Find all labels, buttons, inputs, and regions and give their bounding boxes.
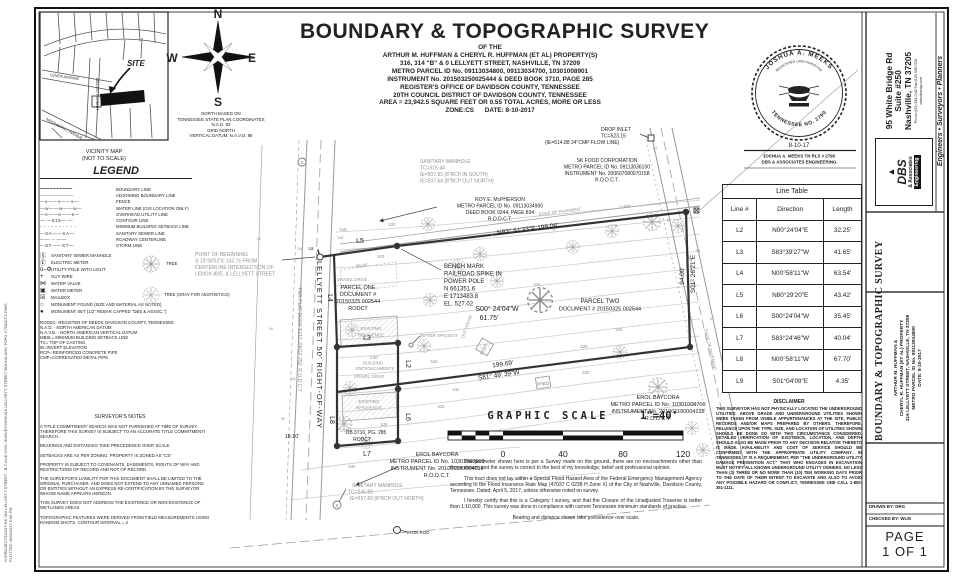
drawing-label: ST bbox=[709, 316, 715, 321]
surveyor-note: SETBACKS ARE AS PER ZONING. PROPERTY IS … bbox=[40, 453, 210, 458]
drawing-label: L5 bbox=[356, 238, 364, 245]
drawn-by: DRAWN BY: DRG bbox=[869, 504, 943, 509]
drawing-label: L2 bbox=[404, 360, 411, 368]
drawing-label: L6 bbox=[404, 413, 411, 421]
surveyor-note: THIS SURVEY DOES NOT ADDRESS THE EXISTEN… bbox=[40, 500, 210, 510]
disclaimer-text: THIS SURVEYOR HAS NOT PHYSICALLY LOCATED… bbox=[716, 407, 862, 490]
drawing-label: PER PLAT BOOK 5210, PAGE 252, R.O.D.C.T. bbox=[296, 287, 302, 392]
legend-symbol-icon: ● bbox=[40, 309, 51, 315]
drawing-label: R.O.D.C.T. bbox=[595, 178, 619, 184]
legend-line-sample: —ST——ST— bbox=[40, 243, 116, 248]
legend-line-item: —ST——ST—STORM LINE bbox=[40, 243, 200, 249]
drawing-label: LELLYETT STREET 50' RIGHT-OF-WAY bbox=[315, 261, 324, 429]
drawing-label: LENOX AVE. & LELLYETT STREET bbox=[195, 272, 275, 278]
drawing-label: L7 bbox=[363, 451, 371, 458]
svg-text:S: S bbox=[335, 503, 338, 508]
drawing-label: S bbox=[214, 95, 222, 109]
drawing-label: RESIDENCE bbox=[356, 406, 382, 411]
title-description: ARTHUR M. HUFFMAN & CHERYL R. HUFFMAN (E… bbox=[270, 52, 710, 115]
graphic-scale-title: GRAPHIC SCALE bbox=[448, 410, 648, 422]
title-line: REGISTER'S OFFICE OF DAVIDSON COUNTY, TE… bbox=[270, 84, 710, 92]
address-line: Nashville, TN 37205 bbox=[904, 52, 914, 130]
legend-line-sample: —— – —— bbox=[40, 237, 116, 242]
drawing-label: 528 bbox=[581, 344, 589, 349]
drawing-label: 18.10' bbox=[285, 434, 300, 440]
company-contact: Phone (615) 294-0042 Fax (615) 645-7722 bbox=[914, 52, 918, 130]
table-header: Direction bbox=[757, 199, 824, 221]
drawing-label: W bbox=[166, 51, 178, 65]
drawing-label: SANITARY MANHOLE bbox=[352, 483, 403, 489]
drawing-label: L8 bbox=[328, 416, 335, 424]
drawing-label: TC=515.44 bbox=[420, 166, 445, 172]
table-row: L6S00°24'04"W35.45' bbox=[723, 306, 862, 328]
legend-line-sample: —e——e——e— bbox=[40, 212, 116, 217]
drawing-label: S01° 26'21"E bbox=[689, 254, 697, 293]
seal-inner-arc: REGISTERED LAND SURVEYOR bbox=[775, 59, 824, 73]
drawing-label: W bbox=[269, 326, 273, 331]
checked-by: CHECKED BY: WLM bbox=[869, 516, 943, 521]
page-number-label: PAGE bbox=[866, 529, 944, 544]
company-address: 95 White Bridge RdSuite #250Nashville, T… bbox=[885, 52, 924, 130]
drawing-label: W bbox=[281, 416, 285, 421]
site-parcel bbox=[100, 90, 145, 106]
legend-line-sample: — —515— — bbox=[40, 218, 116, 223]
iron-rod-icon bbox=[394, 527, 401, 534]
drawing-label: DOCUMENT # bbox=[340, 292, 377, 298]
water-meter-icon bbox=[694, 208, 699, 213]
drawing-label: 530 bbox=[583, 370, 591, 375]
drawing-label: 534 bbox=[453, 387, 461, 392]
drawing-label: SANITARY MANHOLE bbox=[420, 159, 471, 165]
project-line: DATE: 8-10-2017 bbox=[918, 295, 924, 441]
drawing-label: 524 bbox=[534, 282, 542, 287]
plot-file-note: N:\PROJECTS\2017\ND 316 LELLYETT STREET … bbox=[4, 142, 14, 562]
table-row: L7S83°24'46"W40.04' bbox=[723, 328, 862, 350]
svg-text:S: S bbox=[300, 160, 303, 165]
surveyor-note: PROPERTY IS SUBJECT TO COVENANTS, EASEME… bbox=[40, 462, 210, 472]
drawing-label: ROY E. McPHERSON bbox=[475, 197, 525, 203]
legend-symbol-label: UTILITY POLE WITH LIGHT bbox=[51, 267, 106, 272]
survey-sheet: S S bbox=[0, 0, 957, 580]
drawing-label: N bbox=[214, 7, 223, 21]
legend-line-sample: —x——x——x— bbox=[40, 199, 116, 204]
site-leader bbox=[113, 68, 130, 90]
disclaimer-header: DISCLAIMER bbox=[716, 399, 862, 405]
drawing-label: EXISTING bbox=[360, 326, 382, 331]
seal-eagle-icon bbox=[779, 86, 819, 107]
drawing-label: 199.69' bbox=[492, 360, 514, 370]
surveyor-seal: JOSHUA A. MEEKS REGISTERED LAND SURVEYOR… bbox=[744, 46, 856, 168]
legend-line-sample: —SA——SA— bbox=[40, 231, 116, 236]
drawing-label: DEED BOOK 9244, PAGE 834 bbox=[466, 210, 534, 216]
drawing-label: IE=507.64 (8"RCP OUT NORTH) bbox=[420, 179, 494, 185]
drawing-label: E 1713483.8 bbox=[444, 294, 479, 300]
drawing-label: GRAVEL DRIVE bbox=[354, 374, 385, 379]
graphic-scale-bar bbox=[448, 431, 683, 440]
north-datum-note: NORTH BASED ONTENNESSEE STATE PLAN COORD… bbox=[148, 111, 294, 139]
legend-symbol-label: ELECTRIC METER bbox=[51, 260, 88, 265]
table-row: L5N80°29'20"E43.42' bbox=[723, 285, 862, 307]
drawing-label: ST bbox=[652, 146, 658, 151]
north-note-line: VERTICAL DATUM: N.A.V.D. 88 bbox=[148, 133, 294, 139]
drawing-label: POINT OF BEGINNING bbox=[195, 252, 248, 258]
drawing-label: RODCT bbox=[348, 306, 368, 312]
drawing-label: S81° 49' 39"W bbox=[477, 368, 520, 382]
drawing-label: SITE bbox=[127, 59, 145, 68]
drawing-label: 38.94' bbox=[355, 262, 368, 268]
drawing-label: × bbox=[429, 238, 432, 244]
legend-line-item: —w——w——w—WATER LINE (GIS LOCATION ONLY) bbox=[40, 205, 200, 211]
legend-line-label: FENCE bbox=[116, 199, 131, 204]
drawing-label: × bbox=[667, 218, 670, 224]
drawing-label: GRAVEL DRIVE bbox=[337, 277, 368, 282]
certification-notes: The perimeter shown here is per a Survey… bbox=[450, 459, 702, 525]
company-logo: ▲ DBS & Associates Engineering bbox=[875, 138, 933, 206]
drawing-label: POWER POLE bbox=[444, 279, 484, 285]
drawing-label: L9 bbox=[308, 246, 314, 251]
legend-tree-label: TREE bbox=[166, 261, 177, 266]
compass-rose bbox=[182, 21, 254, 93]
drawing-label: (IE=514.88 24"CMP FLOW LINE) bbox=[545, 140, 620, 146]
table-row: L4N00°58'11"W63.54' bbox=[723, 263, 862, 285]
drawing-label: OUT HOUSE bbox=[460, 314, 473, 339]
drawing-label: × bbox=[491, 233, 494, 239]
surveyor-note: A TITLE COMMITMENT/ SEARCH WAS NOT FURNI… bbox=[40, 424, 210, 439]
surveyors-notes-header: SURVEYOR'S NOTES bbox=[40, 414, 200, 420]
logo-dbs: DBS bbox=[896, 159, 908, 184]
plot-timestamp: PLOTTED: 8/29/2017 5:05 PM bbox=[9, 142, 14, 562]
drawing-label: 536 bbox=[438, 404, 446, 409]
seal-cert-line1: JOSHUA A. MEEKS TN RLS # 2790 bbox=[763, 154, 836, 159]
drawing-label: 526 bbox=[616, 327, 624, 332]
drawing-label: N 661351.6 bbox=[444, 287, 476, 293]
drawing-label: BUILDING bbox=[363, 361, 383, 366]
page-subtitle: OF THE bbox=[300, 44, 680, 51]
seal-date: 8-10-17 bbox=[789, 143, 810, 149]
drawing-label: PARCEL TWO bbox=[581, 299, 620, 305]
company-web: www.dbsengr.com bbox=[919, 52, 923, 130]
svg-text:REGISTERED LAND SURVEYOR: REGISTERED LAND SURVEYOR bbox=[775, 59, 824, 73]
sanitary-manhole-icon: S bbox=[333, 501, 341, 509]
surveyors-notes: A TITLE COMMITMENT/ SEARCH WAS NOT FURNI… bbox=[40, 424, 210, 529]
drawing-label: IRON ROD bbox=[407, 530, 430, 535]
drawing-label: 94.00' bbox=[679, 267, 686, 285]
drawing-label: R.O.D.C.T. bbox=[424, 473, 451, 479]
legend-line-label: CONTOUR LINE bbox=[116, 218, 148, 223]
drawing-label: EROL BAYCORA bbox=[416, 452, 459, 458]
drawing-label: EDGE OF PAVEMENT bbox=[703, 328, 718, 371]
legend-line-label: BOUNDARY LINE bbox=[116, 187, 151, 192]
title-line: 20TH COUNCIL DISTRICT OF DAVIDSON COUNTY… bbox=[270, 92, 710, 100]
legend-symbol-label: WATER METER bbox=[51, 288, 82, 293]
sanitary-manhole-icon: S bbox=[298, 158, 306, 166]
company-block: ▲ DBS & Associates Engineering 95 White … bbox=[872, 14, 936, 208]
scale-tick-label: 80 bbox=[618, 449, 628, 459]
drawing-label: SA bbox=[290, 376, 296, 381]
certification-paragraph: I hereby certify that this is a Category… bbox=[450, 498, 702, 510]
legend-line-item: - - - - - - - - - -MINIMUM BUILDING SETB… bbox=[40, 224, 200, 230]
drawing-label: EDGE OF PAVEMENT bbox=[538, 206, 581, 216]
drawing-label: DROP INLET bbox=[601, 127, 631, 133]
drawing-label: R.O.D.C.T. bbox=[488, 217, 512, 223]
title-line: 316, 314 "B" & 0 LELLYETT STREET, NASHVI… bbox=[270, 60, 710, 68]
drawing-label: ENCROACHMENTS bbox=[356, 366, 395, 371]
drawing-label: IE=507.93 (8"RCP IN SOUTH) bbox=[420, 172, 488, 178]
logo-engineering: Engineering bbox=[914, 155, 921, 190]
legend-line-label: ADJOINING BOUNDARY LINE bbox=[116, 193, 176, 198]
title-line: ZONE:CS DATE: 8-10-2017 bbox=[270, 107, 710, 115]
drawing-label: METRO PARCEL ID No. 09113036100 bbox=[564, 165, 650, 171]
legend-line-label: ROADWAY CENTERLINE bbox=[116, 237, 166, 242]
drawing-label: 20150325 002544 bbox=[336, 299, 380, 305]
drawing-label: ST bbox=[695, 248, 701, 253]
project-block: BOUNDARY & TOPOGRAPHIC SURVEY ARTHUR M. … bbox=[874, 295, 932, 441]
drawing-label: RODCT bbox=[353, 437, 371, 443]
title-line: AREA = 23,942.5 SQUARE FEET OR 0.55 TOTA… bbox=[270, 99, 710, 107]
drawing-label: 522 bbox=[378, 254, 386, 259]
drawing-label: W bbox=[257, 236, 261, 241]
drawing-label: 532 bbox=[431, 359, 439, 364]
title-line: ARTHUR M. HUFFMAN & CHERYL R. HUFFMAN (E… bbox=[270, 52, 710, 60]
water-spiggot-icon bbox=[409, 343, 413, 347]
legend-symbol-label: WATER VALVE bbox=[51, 281, 80, 286]
legend-symbol-icon: ○ bbox=[40, 302, 51, 308]
drawing-label: METRO PARCEL ID No. 10301008700 bbox=[610, 402, 705, 408]
drawing-label: E bbox=[248, 51, 256, 65]
certification-paragraph: Bearing and distance shown take preceden… bbox=[450, 515, 702, 521]
drawing-label: PARCEL ONE bbox=[341, 285, 376, 291]
legend-line-label: STORM LINE bbox=[116, 243, 142, 248]
legend-symbol-icon: ▣ bbox=[40, 287, 51, 294]
legend-line-label: OVERHEAD UTILITY LINE bbox=[116, 212, 168, 217]
legend-symbol-label: SANITARY SEWER MANHOLE bbox=[51, 253, 111, 258]
drawing-label: DB.3710, PG. 285 bbox=[346, 430, 387, 436]
certification-paragraph: This tract does not lay within a Special… bbox=[450, 476, 702, 494]
scale-tick-label: 40 bbox=[558, 449, 568, 459]
surveyor-note: THE SURVEYOR'S LIABILITY FOR THIS DOCUME… bbox=[40, 476, 210, 496]
legend-line-label: MINIMUM BUILDING SETBACK LINE bbox=[116, 224, 189, 229]
abbreviation-line: CMP=CORREGATED METAL PIPE bbox=[40, 355, 198, 360]
legend-header: LEGEND bbox=[40, 165, 192, 179]
scale-ticks: 04080120 bbox=[501, 449, 691, 459]
drawing-label: CENTERLINE INTERSECTION OF bbox=[195, 265, 274, 271]
table-header: Line # bbox=[723, 199, 757, 221]
page-title: BOUNDARY & TOPOGRAPHIC SURVEY bbox=[300, 20, 680, 44]
contour-lines bbox=[290, 200, 700, 500]
table-row: L9S01°04'09"E4.35' bbox=[723, 371, 862, 393]
drawing-label: SK FOOD CORPORATION bbox=[577, 158, 638, 164]
title-line: METRO PARCEL ID No. 09113034800, 0911303… bbox=[270, 68, 710, 76]
legend-line-sample: ━━━━━━━━━━ bbox=[40, 186, 116, 192]
drawing-label: BENCH MARK bbox=[444, 264, 484, 270]
drawing-label: DOCUMENT # 20150325 002544 bbox=[559, 307, 641, 313]
certification-paragraph: The perimeter shown here is per a Survey… bbox=[450, 459, 702, 471]
legend-symbol-icon: o–Φ bbox=[40, 267, 51, 273]
surveyor-note: TOPOGRAPHIC FEATURES WERE DERIVED FROM F… bbox=[40, 515, 210, 525]
drawing-label: VICINITY MAP bbox=[86, 149, 123, 155]
drawing-label: TC=523.15 bbox=[601, 134, 626, 140]
seal-cert-line2: DBS & ASSOCIATES ENGINEERING bbox=[762, 160, 837, 165]
drawing-label: 4.90' bbox=[370, 355, 379, 360]
table-row: L2N00°24'04"E32.25' bbox=[723, 220, 862, 242]
drawing-label: SHED bbox=[537, 381, 550, 386]
legend-symbol-label: GUY WIRE bbox=[51, 274, 73, 279]
legend-symbol-label: MAILBOX bbox=[51, 295, 70, 300]
table-row: L8N00°58'11"W67.70' bbox=[723, 349, 862, 371]
scale-tick-label: 120 bbox=[676, 449, 690, 459]
drawing-label: TC=545.83 bbox=[348, 490, 373, 496]
legend-line-label: SANITARY SEWER LINE bbox=[116, 231, 165, 236]
company-tagline: Engineers • Surveyors • Planners bbox=[937, 14, 947, 208]
drawing-label: S00° 24'04"W bbox=[475, 305, 519, 313]
legend-tree-gray-label: TREE (GRAY FOR AESTHETICS) bbox=[164, 292, 230, 297]
line-table-header-row: Line #DirectionLength bbox=[723, 199, 862, 221]
project-title: BOUNDARY & TOPOGRAPHIC SURVEY bbox=[874, 295, 894, 441]
scale-tick-label: 0 bbox=[501, 449, 506, 459]
legend-line-sample: —w——w——w— bbox=[40, 206, 116, 211]
drawing-label: 61.75' bbox=[480, 315, 499, 322]
drawing-label: 5/8" bbox=[338, 235, 346, 240]
drawing-label: 540 bbox=[349, 464, 357, 469]
seal-state-arc: TENNESSEE NO. 2790 bbox=[770, 110, 828, 129]
monument-found-icon bbox=[317, 254, 323, 260]
legend-symbol-icon: ☒ bbox=[40, 294, 51, 301]
drawing-label: 518 bbox=[340, 227, 348, 232]
table-row: L3S83°39'27"W41.65' bbox=[723, 242, 862, 264]
drawing-label: EL. 527.02 bbox=[444, 302, 474, 308]
tree-icon bbox=[140, 253, 162, 280]
line-table: Line Table Line #DirectionLength L2N00°2… bbox=[722, 184, 862, 393]
drawing-label: CURB bbox=[619, 203, 632, 209]
drawing-label: L4 bbox=[326, 294, 333, 302]
drawing-label: INSTRUMENT No. 200607080070158 bbox=[565, 171, 650, 177]
line-table-title: Line Table bbox=[722, 184, 862, 198]
graphic-scale-ratio: 1"=40' bbox=[640, 410, 710, 422]
legend-line-items: ━━━━━━━━━━BOUNDARY LINE─────────ADJOININ… bbox=[40, 186, 200, 249]
drawing-label: EXISTING bbox=[358, 399, 380, 404]
drawing-label: METRO PARCEL ID No. 09113034900 bbox=[457, 204, 543, 210]
drawing-label: LELLYETT STREET bbox=[95, 78, 99, 111]
legend-line-sample: - - - - - - - - - - bbox=[40, 224, 116, 229]
surveyor-note: BEARINGS AND DISTANCES TAKE PRECEDENCE O… bbox=[40, 443, 210, 448]
title-line: INSTRUMENT No. 201503250025444 & DEED BO… bbox=[270, 76, 710, 84]
legend-line-sample: ───────── bbox=[40, 193, 116, 198]
page-number-value: 1 OF 1 bbox=[866, 544, 944, 559]
drawing-label: RESIDENCE bbox=[358, 333, 384, 338]
drawing-label: WATER SPIGGOT bbox=[420, 333, 458, 338]
legend-line-label: WATER LINE (GIS LOCATION ONLY) bbox=[116, 206, 189, 211]
drawing-label: RAILROAD SPIKE IN bbox=[444, 272, 502, 278]
legend-symbol-icon: + bbox=[40, 274, 51, 280]
line-table-body: L2N00°24'04"E32.25'L3S83°39'27"W41.65'L4… bbox=[723, 220, 862, 392]
drawing-label: EROL BAYCORA bbox=[637, 395, 680, 401]
tree-gray-icon bbox=[140, 284, 162, 311]
drawing-label: × bbox=[615, 223, 618, 229]
drawing-label: SA bbox=[297, 246, 303, 251]
table-header: Length bbox=[824, 199, 862, 221]
drawing-label: IE=537.83 (8"RCP OUT NORTH) bbox=[350, 496, 424, 502]
drawing-label: 520 bbox=[389, 222, 397, 227]
legend-abbreviations: RODDC- REGISTER OF DEEDS DAVIDSON COUNTY… bbox=[40, 320, 198, 360]
legend-symbol-icon: ⋈ bbox=[40, 280, 51, 287]
drawing-label: S 13°38'52"E 132.7± FROM bbox=[195, 259, 257, 265]
drawing-label: × bbox=[553, 228, 556, 234]
project-line: 316 LELLYETT STREET, NASHVILLE, TN 37209 bbox=[906, 295, 912, 441]
svg-text:TENNESSEE NO. 2790: TENNESSEE NO. 2790 bbox=[770, 110, 828, 129]
drawing-label: 538 bbox=[381, 422, 389, 427]
drawing-label: (NOT TO SCALE) bbox=[82, 156, 126, 162]
